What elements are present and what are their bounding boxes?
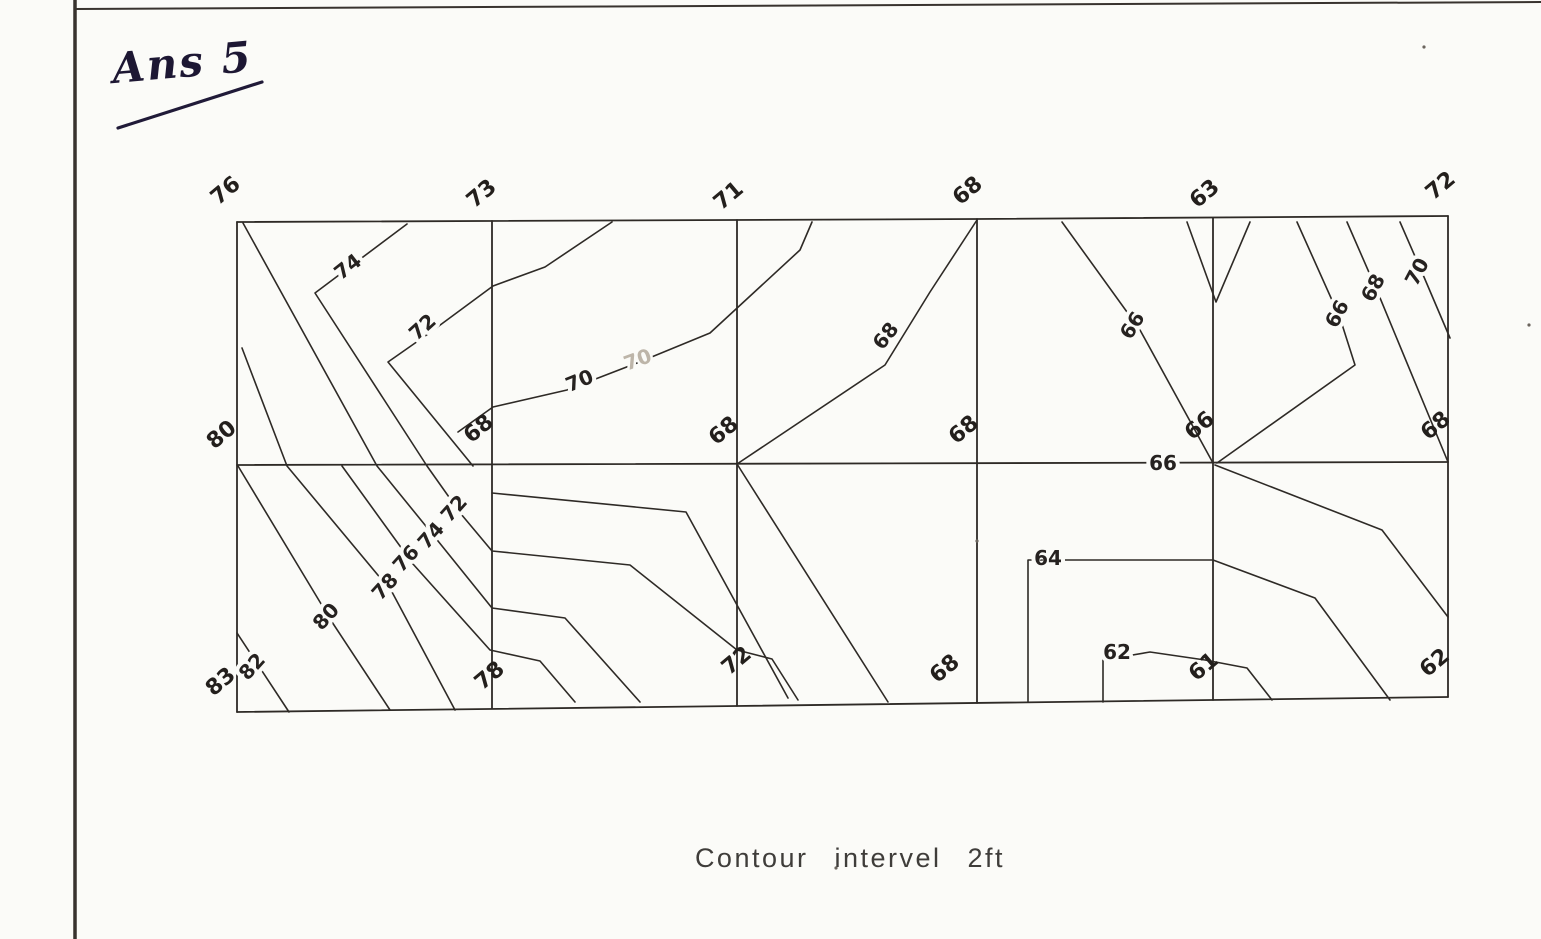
contour-value-label: 78	[367, 568, 403, 605]
contour-line-unlabeled-11	[1187, 222, 1250, 302]
contour-line-68	[737, 220, 977, 702]
station-value-label: 72	[1421, 167, 1461, 206]
station-value-label: 68	[1416, 407, 1456, 446]
station-value-label: 78	[470, 657, 510, 696]
contour-value-label: 66	[1149, 451, 1177, 475]
contour-line-64	[1028, 560, 1390, 702]
contour-value-label: 62	[1103, 640, 1131, 664]
station-value-label: 68	[925, 650, 965, 689]
grid-middle-line	[237, 462, 1448, 465]
contour-value-label: 68	[867, 317, 903, 354]
station-value-label: 68	[948, 172, 988, 211]
station-value-label: 71	[709, 177, 749, 216]
contour-line-70	[458, 222, 812, 432]
contour-line-66	[1215, 465, 1448, 617]
scanned-page: 7472707068666668707274767880826462667673…	[0, 0, 1541, 939]
station-value-label: 73	[462, 175, 502, 214]
contour-value-label: 70	[620, 343, 654, 375]
contour-value-label: 72	[404, 309, 441, 345]
contour-value-label: 68	[1356, 270, 1390, 306]
contour-line-74-72	[315, 224, 798, 700]
station-value-label: 76	[206, 172, 246, 211]
page-top-border	[75, 2, 1541, 9]
contour-value-label: 66	[1320, 296, 1354, 332]
contour-value-label: 70	[562, 364, 597, 397]
scan-speckle	[1527, 323, 1530, 326]
scan-speckle	[975, 539, 978, 542]
contour-line-72	[388, 222, 612, 466]
grid-top-edge	[237, 216, 1448, 222]
contour-interval-caption: Contour intervel 2ft	[610, 843, 1090, 874]
contour-line-66	[1217, 222, 1355, 463]
contour-value-label: 70	[1400, 254, 1434, 290]
station-value-label: 80	[202, 416, 242, 455]
contour-value-label: 64	[1034, 546, 1062, 570]
station-value-label: 63	[1185, 175, 1225, 214]
contour-map-svg: 7472707068666668707274767880826462667673…	[0, 0, 1541, 939]
station-value-label: 61	[1184, 648, 1224, 687]
grid-bottom-edge	[237, 697, 1448, 712]
station-value-label: 72	[717, 642, 757, 681]
contour-value-label: 82	[234, 648, 270, 685]
contour-line-74	[243, 223, 640, 702]
contour-value-label: 80	[308, 598, 344, 635]
scan-speckle	[1422, 45, 1425, 48]
